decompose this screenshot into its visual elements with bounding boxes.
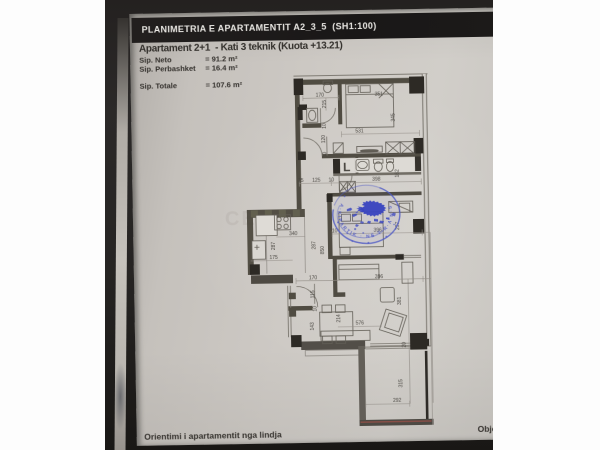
svg-text:25: 25 [298,178,304,184]
svg-text:162: 162 [395,169,401,178]
svg-text:351: 351 [375,92,384,98]
svg-text:10: 10 [328,177,334,183]
svg-text:10: 10 [322,123,328,129]
svg-text:315: 315 [398,379,404,388]
svg-text:345: 345 [391,113,397,122]
svg-text:576: 576 [356,320,365,326]
svg-text:120: 120 [321,135,327,144]
svg-text:170: 170 [316,93,325,99]
svg-text:292: 292 [393,398,402,404]
svg-text:10: 10 [322,152,328,158]
svg-text:175: 175 [269,255,278,261]
svg-text:115: 115 [310,290,316,298]
svg-text:L: L [343,160,351,174]
svg-text:214: 214 [336,314,342,323]
svg-text:215: 215 [322,100,328,109]
svg-text:531: 531 [355,128,364,134]
svg-text:20: 20 [402,342,408,348]
svg-text:143: 143 [310,322,316,331]
svg-text:170: 170 [309,275,318,281]
svg-text:125: 125 [312,178,321,184]
svg-text:10: 10 [312,306,318,312]
svg-text:287: 287 [311,241,317,250]
svg-text:398: 398 [372,177,381,183]
svg-text:396: 396 [375,274,384,280]
svg-text:340: 340 [289,231,298,237]
svg-text:850: 850 [320,246,326,255]
svg-text:287: 287 [271,242,277,251]
svg-text:381: 381 [397,296,403,305]
